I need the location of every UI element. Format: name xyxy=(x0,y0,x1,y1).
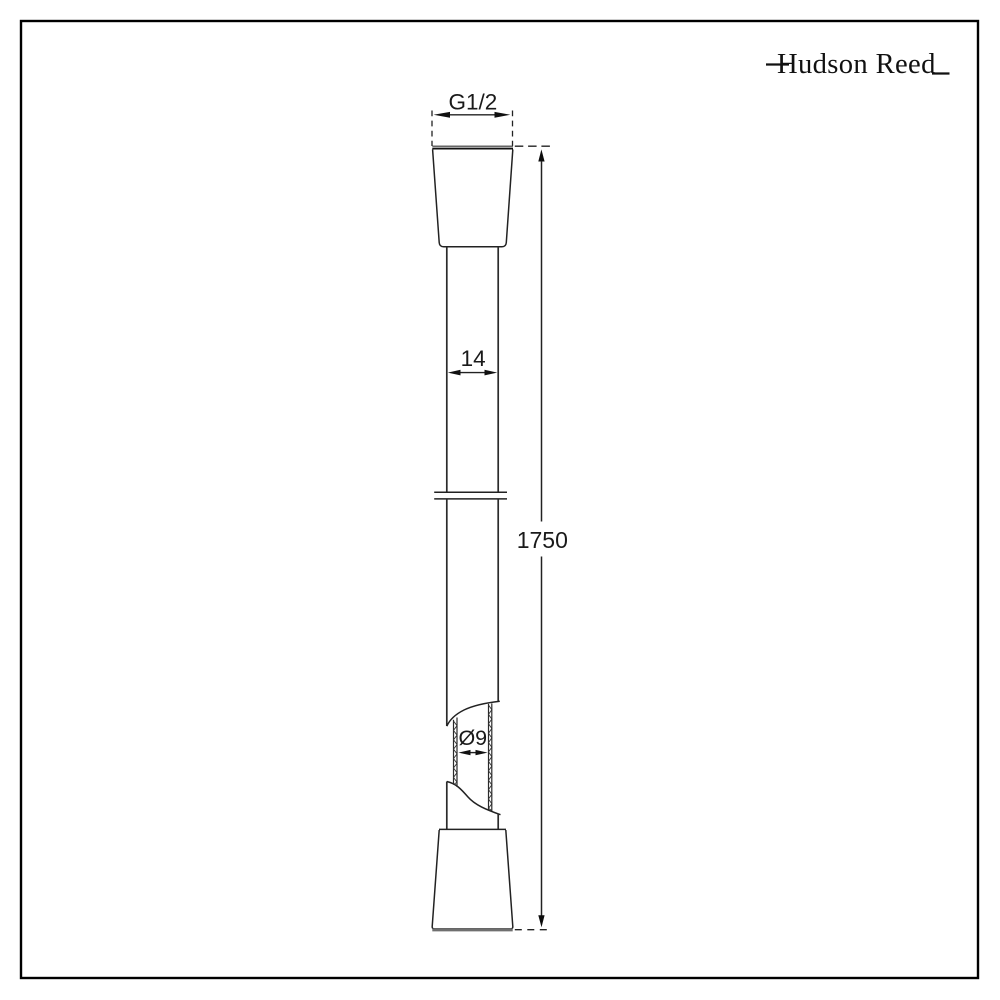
svg-text:1750: 1750 xyxy=(517,527,568,553)
svg-text:Hudson Reed: Hudson Reed xyxy=(777,49,936,80)
svg-text:G1/2: G1/2 xyxy=(449,90,498,115)
svg-text:Ø9: Ø9 xyxy=(458,726,487,750)
svg-text:14: 14 xyxy=(461,346,486,371)
